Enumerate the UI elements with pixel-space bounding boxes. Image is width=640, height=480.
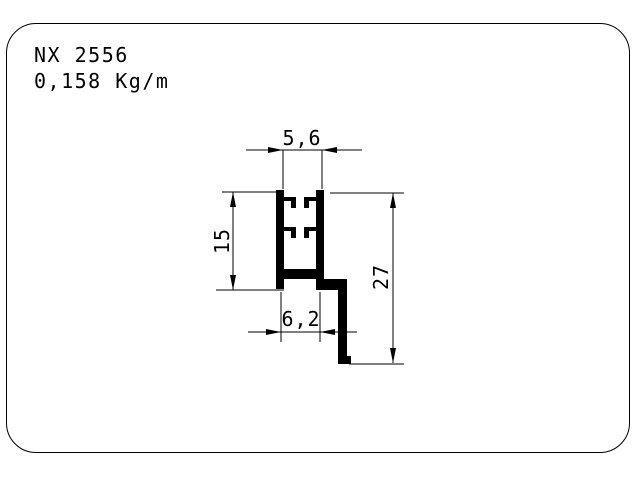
dimension-left-height: 15: [210, 192, 284, 290]
profile-drop-leg: [338, 290, 347, 364]
profile-foot: [338, 356, 351, 364]
profile-tooth-right-lower: [304, 227, 316, 238]
profile-tooth-right-upper: [304, 197, 316, 208]
profile-cross-section: [276, 190, 351, 364]
profile-tooth-left-lower: [284, 227, 296, 238]
profile-drawing: 5,6 15 27 6,2: [0, 0, 640, 480]
arrowhead-down-icon: [390, 348, 396, 363]
arrowhead-up-icon: [230, 192, 236, 207]
dim-label-bottom-width: 6,2: [281, 307, 320, 331]
profile-tooth-left-upper: [284, 197, 296, 208]
arrowhead-left-icon: [322, 147, 337, 153]
dim-label-right-height: 27: [369, 264, 393, 290]
dim-label-left-height: 15: [210, 228, 234, 254]
drawing-sheet: NX 2556 0,158 Kg/m 5,6: [0, 0, 640, 480]
arrowhead-up-icon: [390, 193, 396, 208]
arrowhead-left-icon: [320, 329, 335, 335]
arrowhead-right-icon: [268, 147, 283, 153]
arrowhead-right-icon: [266, 329, 281, 335]
profile-bottom-web: [276, 269, 324, 279]
arrowhead-down-icon: [230, 275, 236, 290]
dim-label-top-width: 5,6: [282, 126, 321, 150]
dimension-top-width: 5,6: [246, 126, 362, 189]
profile-step-flange: [316, 279, 347, 290]
